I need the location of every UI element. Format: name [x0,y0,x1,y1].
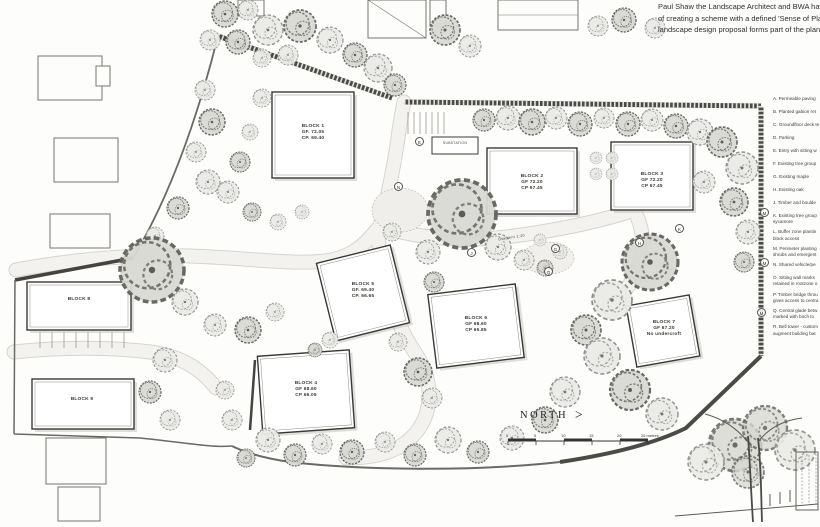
plan-marker: E [415,137,424,146]
north-indicator: NORTH> [520,407,583,423]
scale-tick-15: 15 [589,433,593,438]
legend-item-q: Q. Central glade betwmarked with birch t… [773,308,820,320]
substation-box [432,137,478,154]
plan-marker: M [760,258,769,267]
legend-item-d: D. Parking [773,135,820,141]
central-courtyard [372,188,428,232]
scale-bar [508,440,648,445]
scale-label-metres: 25 metres [641,433,659,438]
block-2-label: BLOCK 2GF 72.20CP 67.45 [500,174,564,192]
trees [120,0,760,467]
intro-line-1: Paul Shaw the Landscape Architect and BW… [658,1,820,13]
intro-paragraph: Paul Shaw the Landscape Architect and BW… [658,1,820,36]
legend-item-g: G. Existing maple [773,174,820,180]
plan-marker: M [760,208,769,217]
legend-item-a: A. Permeable paving [773,96,820,102]
plan-marker: M [757,308,766,317]
plan-marker: J [467,248,476,257]
plan-marker: N [394,182,403,191]
plan-marker: Q [544,267,553,276]
plan-marker: G [551,244,560,253]
scale-tick-5: 5 [534,433,536,438]
plan-marker: H [635,238,644,247]
north-label: NORTH [520,410,568,421]
legend-item-n: N. Shared vehicle/pe [773,262,820,268]
block-6-label: BLOCK 6GF 68.60CP 65.85 [444,316,508,334]
block-8-label: BLOCK 8 [47,297,111,303]
block-1-label: BLOCK 1GF. 72.05CP. 69.40 [281,124,345,142]
legend-item-c: C. Groundfloor deck te [773,122,820,128]
intro-line-3: landscape design proposal forms part of … [658,24,820,36]
scale-tick-10: 10 [561,433,565,438]
legend-item-j: J. Timber and boulde [773,200,820,206]
site-plan-page: Paul Shaw the Landscape Architect and BW… [0,0,820,527]
legend-item-b: B. Planted gabion ret [773,109,820,115]
legend-item-r: R. Bell tower - customaugment building b… [773,324,820,336]
plan-marker: K [675,224,684,233]
block-4-label: BLOCK 4GF 68.60CP 66.05 [274,381,338,399]
scale-tick-20: 20 [617,433,621,438]
intro-line-2: of creating a scheme with a defined 'Sen… [658,13,820,25]
legend-item-m: M. Perimeter plantingshrubs and emergent [773,246,820,258]
legend-item-e: E. Entry with sitting w [773,148,820,154]
legend: A. Permeable paving B. Planted gabion re… [773,96,820,341]
legend-item-f: F. Existing tree group [773,161,820,167]
legend-item-k: K. Existing tree groupsycamore [773,213,820,225]
legend-item-p: P. Timber bridge througives access to ce… [773,292,820,304]
substation-label: SUBSTATION [432,141,478,145]
scale-tick-0: 0 [506,433,508,438]
legend-item-l: L. Buffer zone plantinblock access [773,229,820,241]
north-arrow-icon: > [575,407,583,422]
block-3-label: BLOCK 3GF 72.20CP 67.45 [620,172,684,190]
legend-item-h: H. Existing oak [773,187,820,193]
block-5-label: BLOCK 5GF. 69.40CP. 66.65 [331,282,395,300]
block-7-label: BLOCK 7GF 67.20No undercroft [632,320,696,338]
tree-sketch-vignette [675,406,818,522]
site-plan-drawing [0,0,820,527]
block-9-label: BLOCK 9 [50,397,114,403]
legend-item-o: O. Sitting wall marksretained in rootzon… [773,275,820,287]
